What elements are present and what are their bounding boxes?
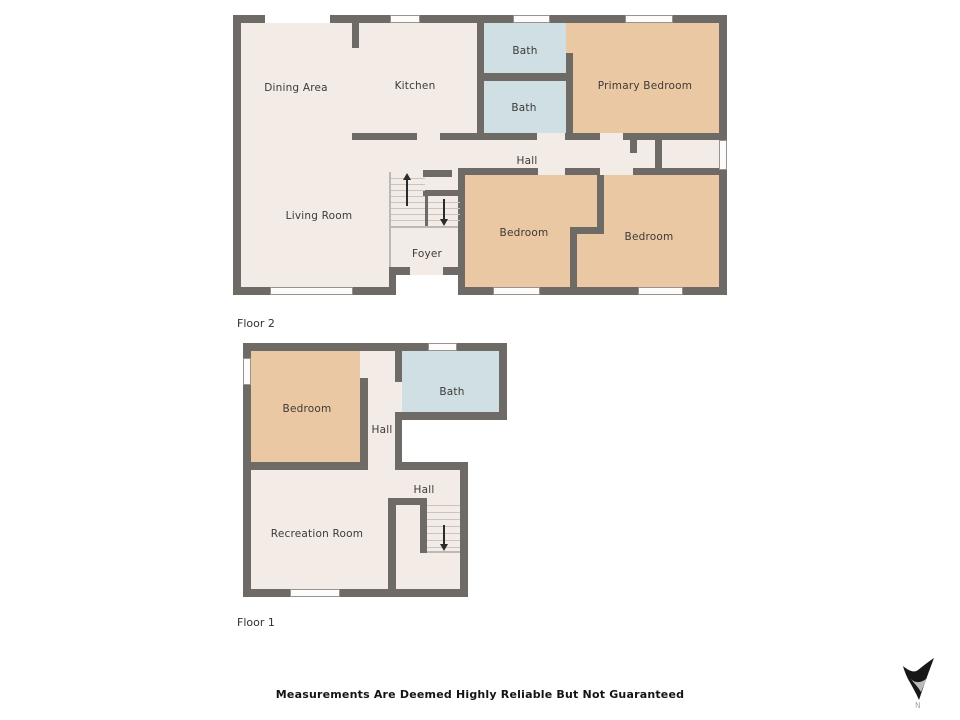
floor1-stairs-down-arrow-icon bbox=[440, 544, 448, 551]
room-label-hall-lower-floor1: Hall bbox=[414, 484, 435, 496]
room-label-bedroom-right: Bedroom bbox=[625, 231, 674, 243]
compass-north-letter: N bbox=[915, 701, 921, 709]
stair-tread bbox=[391, 202, 425, 203]
partition-line bbox=[391, 226, 458, 228]
room-label-bedroom-floor1: Bedroom bbox=[283, 403, 332, 415]
wall-segment bbox=[352, 133, 417, 140]
wall-segment bbox=[423, 170, 452, 177]
wall-segment bbox=[352, 23, 359, 48]
wall-segment bbox=[389, 267, 396, 287]
partition-line bbox=[427, 551, 460, 553]
wall-segment bbox=[233, 287, 270, 295]
window bbox=[428, 343, 457, 351]
wall-segment bbox=[420, 498, 427, 553]
stair-tread bbox=[391, 184, 425, 185]
stair-tread bbox=[391, 214, 425, 215]
wall-segment bbox=[655, 140, 662, 168]
wall-segment bbox=[388, 498, 396, 589]
disclaimer-text: Measurements Are Deemed Highly Reliable … bbox=[0, 688, 960, 701]
wall-segment bbox=[566, 53, 573, 140]
wall-segment bbox=[477, 73, 573, 81]
wall-segment bbox=[396, 267, 410, 275]
partition-line bbox=[425, 192, 428, 227]
window bbox=[390, 15, 420, 23]
room-label-hall-floor2: Hall bbox=[517, 155, 538, 167]
window bbox=[243, 358, 251, 385]
stairs-down-arrow-shaft bbox=[443, 199, 445, 220]
wall-segment bbox=[633, 168, 719, 175]
room-label-foyer: Foyer bbox=[412, 248, 442, 260]
stair-tread bbox=[427, 519, 460, 520]
wall-segment bbox=[458, 287, 493, 295]
floor2-primary-bedroom-fill bbox=[573, 23, 719, 133]
wall-segment bbox=[353, 287, 396, 295]
room-label-living-room: Living Room bbox=[286, 210, 353, 222]
floor-plan-page: Dining Area Kitchen Bath Bath Primary Be… bbox=[0, 0, 960, 720]
stair-tread bbox=[391, 190, 425, 191]
wall-segment bbox=[440, 133, 484, 140]
wall-segment bbox=[243, 589, 290, 597]
wall-segment bbox=[623, 133, 719, 140]
room-label-recreation-room: Recreation Room bbox=[271, 528, 363, 540]
wall-segment bbox=[243, 385, 251, 597]
wall-segment bbox=[460, 462, 468, 597]
room-label-bath-upper: Bath bbox=[512, 45, 537, 57]
room-label-primary-bedroom: Primary Bedroom bbox=[598, 80, 692, 92]
wall-segment bbox=[458, 168, 465, 287]
room-label-hall-upper-floor1: Hall bbox=[372, 424, 393, 436]
floor2-primary-door-gap-fill bbox=[566, 23, 573, 53]
wall-segment bbox=[395, 343, 402, 382]
window bbox=[493, 287, 540, 295]
floor2-entry-recess bbox=[396, 275, 458, 287]
window bbox=[290, 589, 340, 597]
wall-segment bbox=[395, 462, 467, 470]
window bbox=[625, 15, 673, 23]
stairs-up-arrow-icon bbox=[403, 173, 411, 180]
wall-segment bbox=[395, 412, 507, 420]
wall-segment bbox=[340, 589, 468, 597]
wall-segment bbox=[251, 462, 368, 470]
floor1-bath-fill bbox=[402, 351, 499, 412]
floor2-title: Floor 2 bbox=[237, 317, 275, 330]
room-label-kitchen: Kitchen bbox=[395, 80, 436, 92]
wall-segment bbox=[420, 15, 513, 23]
wall-segment bbox=[719, 15, 727, 140]
room-label-dining-area: Dining Area bbox=[264, 82, 328, 94]
wall-segment bbox=[484, 133, 537, 140]
wall-segment bbox=[458, 168, 538, 175]
wall-segment bbox=[243, 343, 251, 358]
floor1-exterior-notch bbox=[402, 420, 460, 462]
wall-segment bbox=[550, 15, 625, 23]
wall-segment bbox=[360, 378, 368, 470]
stair-tread bbox=[391, 196, 425, 197]
stair-tread bbox=[391, 208, 425, 209]
wall-segment bbox=[330, 15, 390, 23]
stairs-down-arrow-icon bbox=[440, 219, 448, 226]
wall-segment bbox=[683, 287, 727, 295]
wall-segment bbox=[570, 234, 577, 287]
wall-segment bbox=[630, 140, 637, 153]
stair-tread bbox=[391, 220, 425, 221]
wall-segment bbox=[719, 170, 727, 295]
room-label-bath-lower: Bath bbox=[511, 102, 536, 114]
room-label-bath-floor1: Bath bbox=[439, 386, 464, 398]
window bbox=[270, 287, 353, 295]
room-label-bedroom-left: Bedroom bbox=[500, 227, 549, 239]
window bbox=[719, 140, 727, 170]
wall-segment bbox=[597, 175, 604, 232]
wall-segment bbox=[565, 133, 600, 140]
stairs-up-arrow-shaft bbox=[406, 180, 408, 206]
wall-segment bbox=[565, 168, 600, 175]
stair-tread bbox=[427, 505, 460, 506]
floor1-stairs-down-arrow-shaft bbox=[443, 525, 445, 545]
wall-segment bbox=[423, 190, 460, 196]
wall-segment bbox=[233, 15, 241, 295]
stair-tread bbox=[427, 512, 460, 513]
window bbox=[513, 15, 550, 23]
floor1-title: Floor 1 bbox=[237, 616, 275, 629]
wall-segment bbox=[499, 343, 507, 420]
wall-segment bbox=[540, 287, 638, 295]
window bbox=[638, 287, 683, 295]
wall-segment bbox=[570, 227, 604, 234]
compass-north-icon: N bbox=[897, 657, 939, 709]
